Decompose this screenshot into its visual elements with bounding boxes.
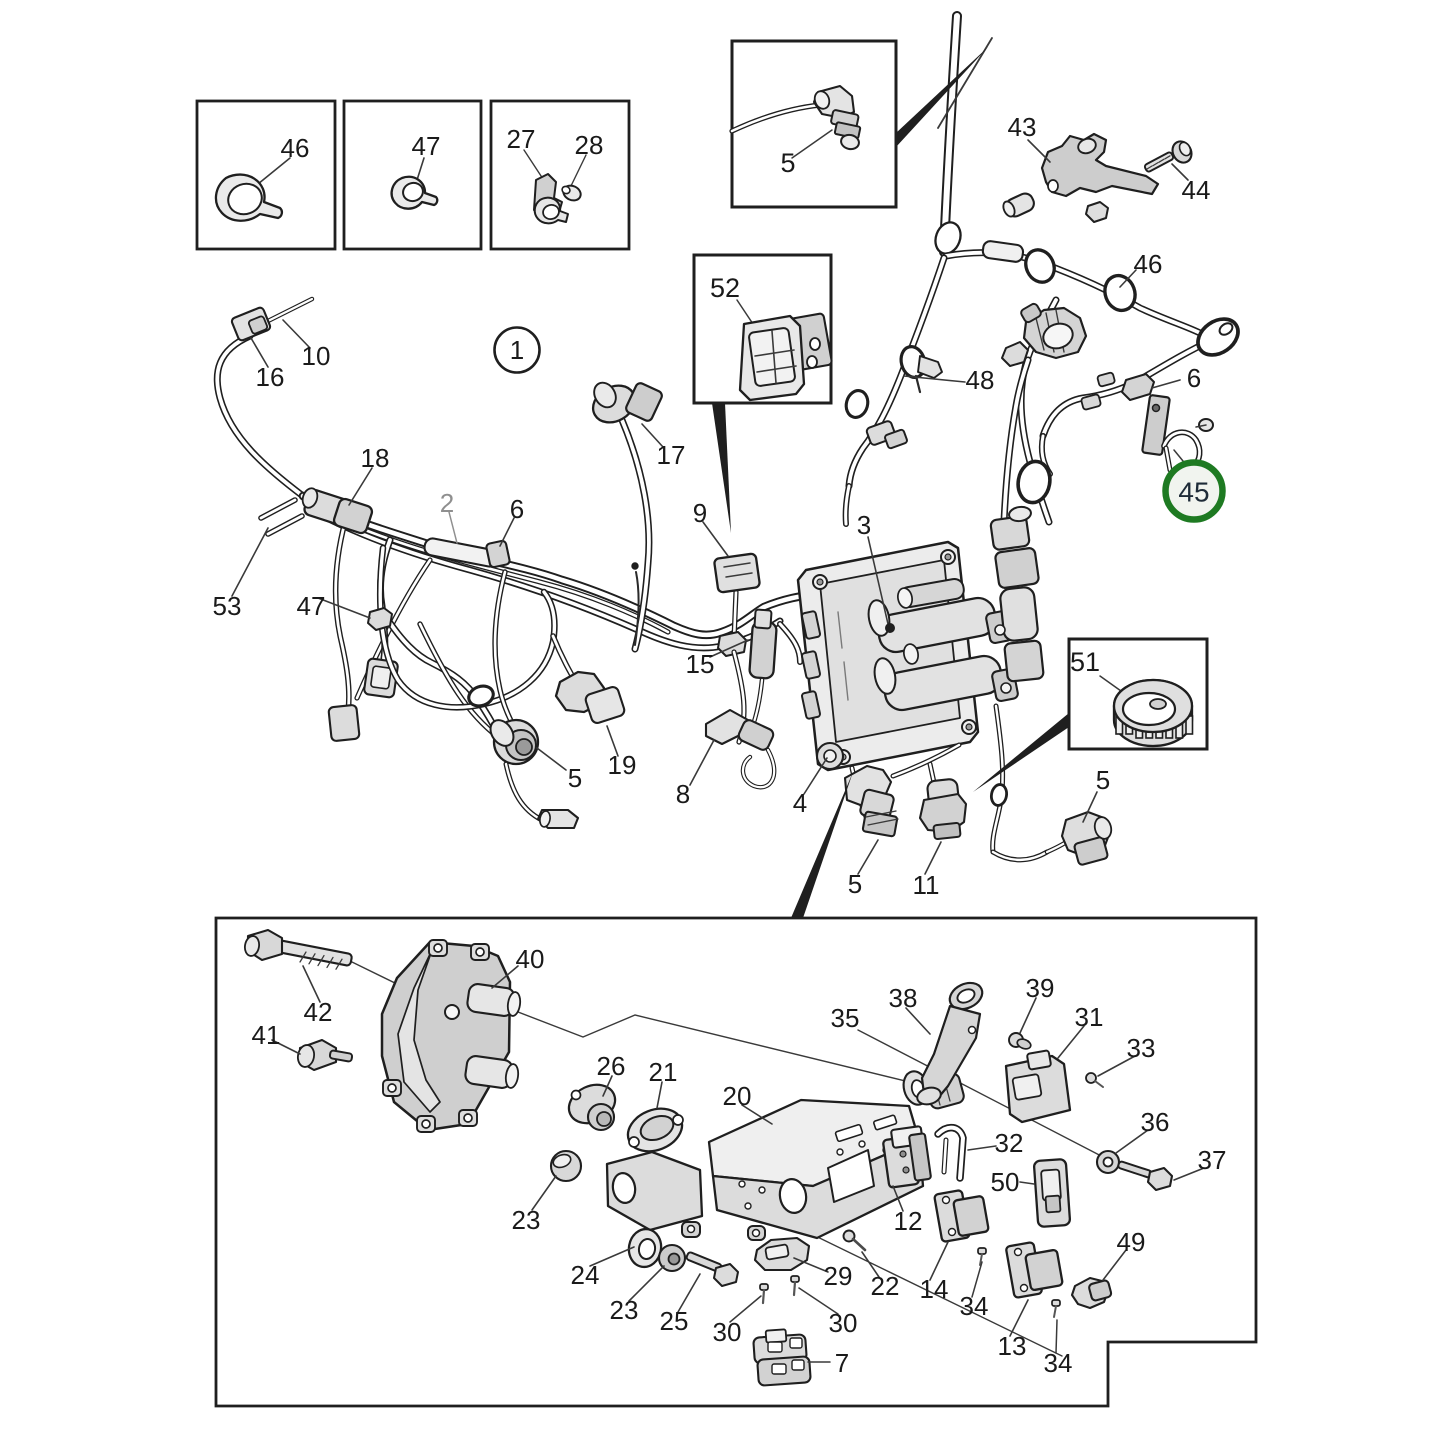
svg-text:47: 47 [412,131,441,161]
svg-text:28: 28 [575,130,604,160]
svg-text:5: 5 [1096,765,1110,795]
svg-text:5: 5 [568,763,582,793]
svg-text:31: 31 [1075,1002,1104,1032]
svg-text:39: 39 [1026,973,1055,1003]
svg-text:29: 29 [824,1261,853,1291]
svg-text:38: 38 [889,983,918,1013]
svg-text:6: 6 [1187,363,1201,393]
svg-text:32: 32 [995,1128,1024,1158]
svg-text:1: 1 [510,335,524,365]
svg-text:51: 51 [1070,647,1100,677]
svg-text:46: 46 [281,133,310,163]
svg-text:35: 35 [831,1003,860,1033]
svg-text:19: 19 [608,750,637,780]
svg-text:4: 4 [793,788,807,818]
svg-text:14: 14 [920,1274,949,1304]
svg-text:18: 18 [361,443,390,473]
svg-text:5: 5 [780,148,795,178]
svg-text:12: 12 [894,1206,923,1236]
svg-text:52: 52 [710,273,740,303]
svg-text:49: 49 [1117,1227,1146,1257]
svg-text:30: 30 [829,1308,858,1338]
svg-text:43: 43 [1008,112,1037,142]
svg-text:2: 2 [440,488,454,518]
svg-text:17: 17 [657,440,686,470]
svg-text:10: 10 [302,341,331,371]
svg-text:22: 22 [871,1271,900,1301]
svg-text:9: 9 [693,498,707,528]
svg-text:45: 45 [1178,477,1209,508]
svg-text:20: 20 [723,1081,752,1111]
svg-text:7: 7 [835,1348,849,1378]
svg-text:34: 34 [960,1291,989,1321]
svg-text:37: 37 [1198,1145,1227,1175]
svg-text:8: 8 [676,779,690,809]
svg-text:6: 6 [510,494,524,524]
svg-text:3: 3 [857,510,871,540]
svg-text:50: 50 [991,1167,1020,1197]
svg-text:16: 16 [256,362,285,392]
svg-text:23: 23 [512,1205,541,1235]
svg-text:33: 33 [1127,1033,1156,1063]
svg-text:24: 24 [571,1260,600,1290]
svg-text:42: 42 [304,997,333,1027]
svg-text:15: 15 [686,649,715,679]
svg-text:44: 44 [1182,175,1211,205]
svg-text:13: 13 [998,1331,1027,1361]
svg-text:36: 36 [1141,1107,1170,1137]
svg-text:53: 53 [213,591,242,621]
svg-text:40: 40 [516,944,545,974]
svg-text:48: 48 [966,365,995,395]
svg-text:26: 26 [597,1051,626,1081]
svg-text:34: 34 [1044,1348,1073,1378]
svg-text:21: 21 [649,1057,678,1087]
svg-text:25: 25 [660,1306,689,1336]
svg-text:27: 27 [507,124,536,154]
svg-text:41: 41 [252,1020,281,1050]
svg-text:5: 5 [848,869,862,899]
svg-text:46: 46 [1134,249,1163,279]
svg-text:47: 47 [297,591,326,621]
svg-text:11: 11 [913,870,940,900]
svg-text:30: 30 [713,1317,742,1347]
svg-text:23: 23 [610,1295,639,1325]
